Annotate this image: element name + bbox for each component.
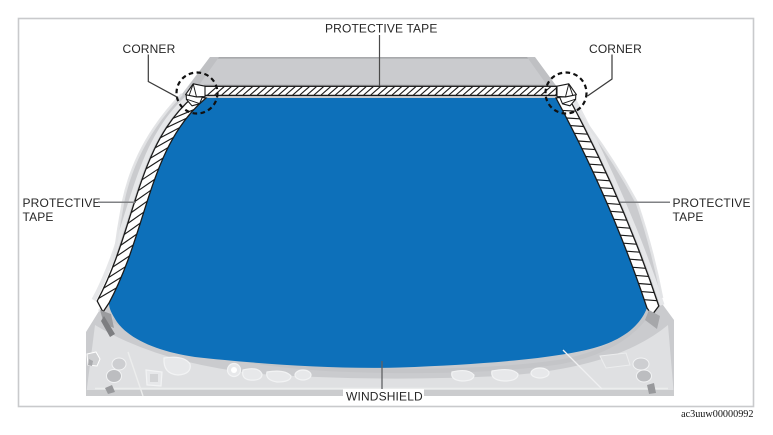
svg-text:CORNER: CORNER: [589, 42, 642, 56]
svg-text:TAPE: TAPE: [23, 210, 54, 224]
svg-text:TAPE: TAPE: [673, 210, 704, 224]
svg-text:PROTECTIVE: PROTECTIVE: [673, 196, 751, 210]
svg-text:CORNER: CORNER: [123, 42, 176, 56]
svg-text:WINDSHIELD: WINDSHIELD: [346, 390, 423, 404]
svg-text:PROTECTIVE TAPE: PROTECTIVE TAPE: [325, 22, 438, 36]
svg-text:ac3uuw00000992: ac3uuw00000992: [681, 409, 753, 420]
svg-text:PROTECTIVE: PROTECTIVE: [23, 196, 101, 210]
